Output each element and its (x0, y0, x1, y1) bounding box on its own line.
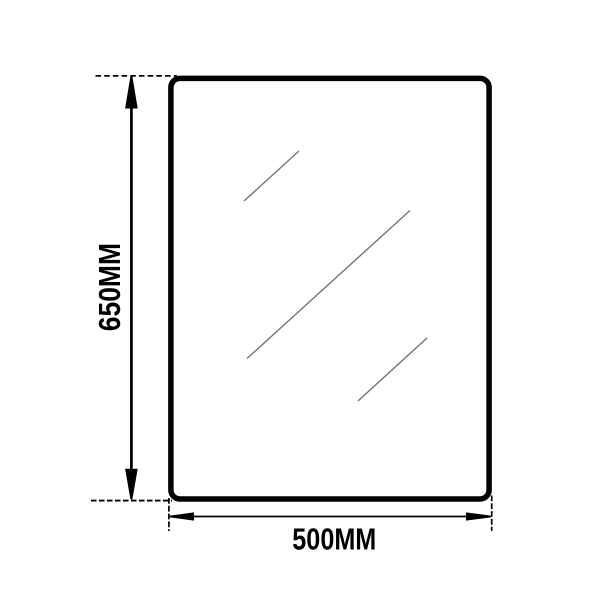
svg-text:650MM: 650MM (93, 243, 127, 331)
svg-text:500MM: 500MM (292, 521, 376, 556)
